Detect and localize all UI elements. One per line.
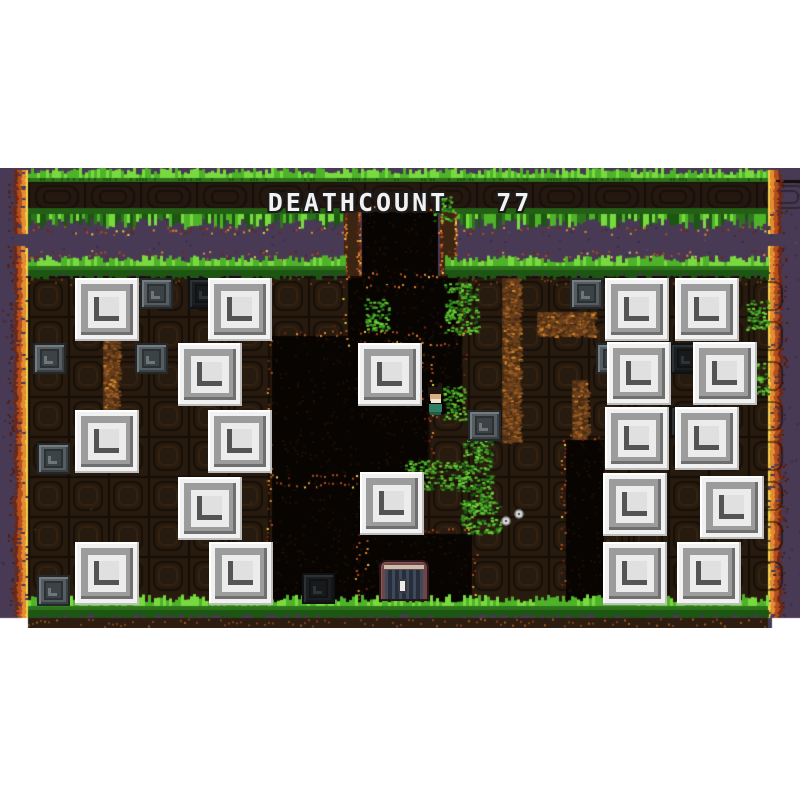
white-block[interactable] xyxy=(605,407,669,470)
player-body xyxy=(429,404,442,412)
white-block[interactable] xyxy=(75,542,139,605)
stone-block xyxy=(33,343,66,374)
deathcount-value: 77 xyxy=(496,188,532,217)
stone-block xyxy=(140,278,173,309)
dark-stone-block xyxy=(302,573,335,604)
deathcount-label: DEATHCOUNT xyxy=(268,188,449,217)
white-block[interactable] xyxy=(605,278,669,341)
white-block[interactable] xyxy=(607,342,671,405)
stone-block xyxy=(37,575,70,606)
white-block[interactable] xyxy=(677,542,741,605)
white-block[interactable] xyxy=(75,410,139,473)
white-block[interactable] xyxy=(360,472,424,535)
exit-door[interactable] xyxy=(379,560,429,601)
screenshot-stage: DEATHCOUNT 77 xyxy=(0,0,800,800)
door-window xyxy=(398,579,407,593)
stone-block xyxy=(37,443,70,474)
white-block[interactable] xyxy=(209,542,273,605)
white-block[interactable] xyxy=(358,343,422,406)
white-block[interactable] xyxy=(208,410,272,473)
stone-block xyxy=(135,343,168,374)
white-block[interactable] xyxy=(208,278,272,341)
door-lintel xyxy=(384,565,424,569)
white-block[interactable] xyxy=(675,278,739,341)
white-block[interactable] xyxy=(75,278,139,341)
white-block[interactable] xyxy=(178,477,242,540)
player-character[interactable] xyxy=(427,387,444,415)
player-hair-spike xyxy=(437,382,443,389)
stone-block xyxy=(468,410,501,441)
white-block[interactable] xyxy=(603,542,667,605)
white-block[interactable] xyxy=(178,343,242,406)
white-block[interactable] xyxy=(603,473,667,536)
deathcount-hud: DEATHCOUNT 77 xyxy=(0,188,800,217)
white-block[interactable] xyxy=(693,342,757,405)
white-block[interactable] xyxy=(675,407,739,470)
stone-block xyxy=(570,278,603,309)
game-viewport: DEATHCOUNT 77 xyxy=(0,168,800,628)
player-feet xyxy=(430,412,441,415)
player-jaw xyxy=(431,399,441,403)
white-block[interactable] xyxy=(700,476,764,539)
